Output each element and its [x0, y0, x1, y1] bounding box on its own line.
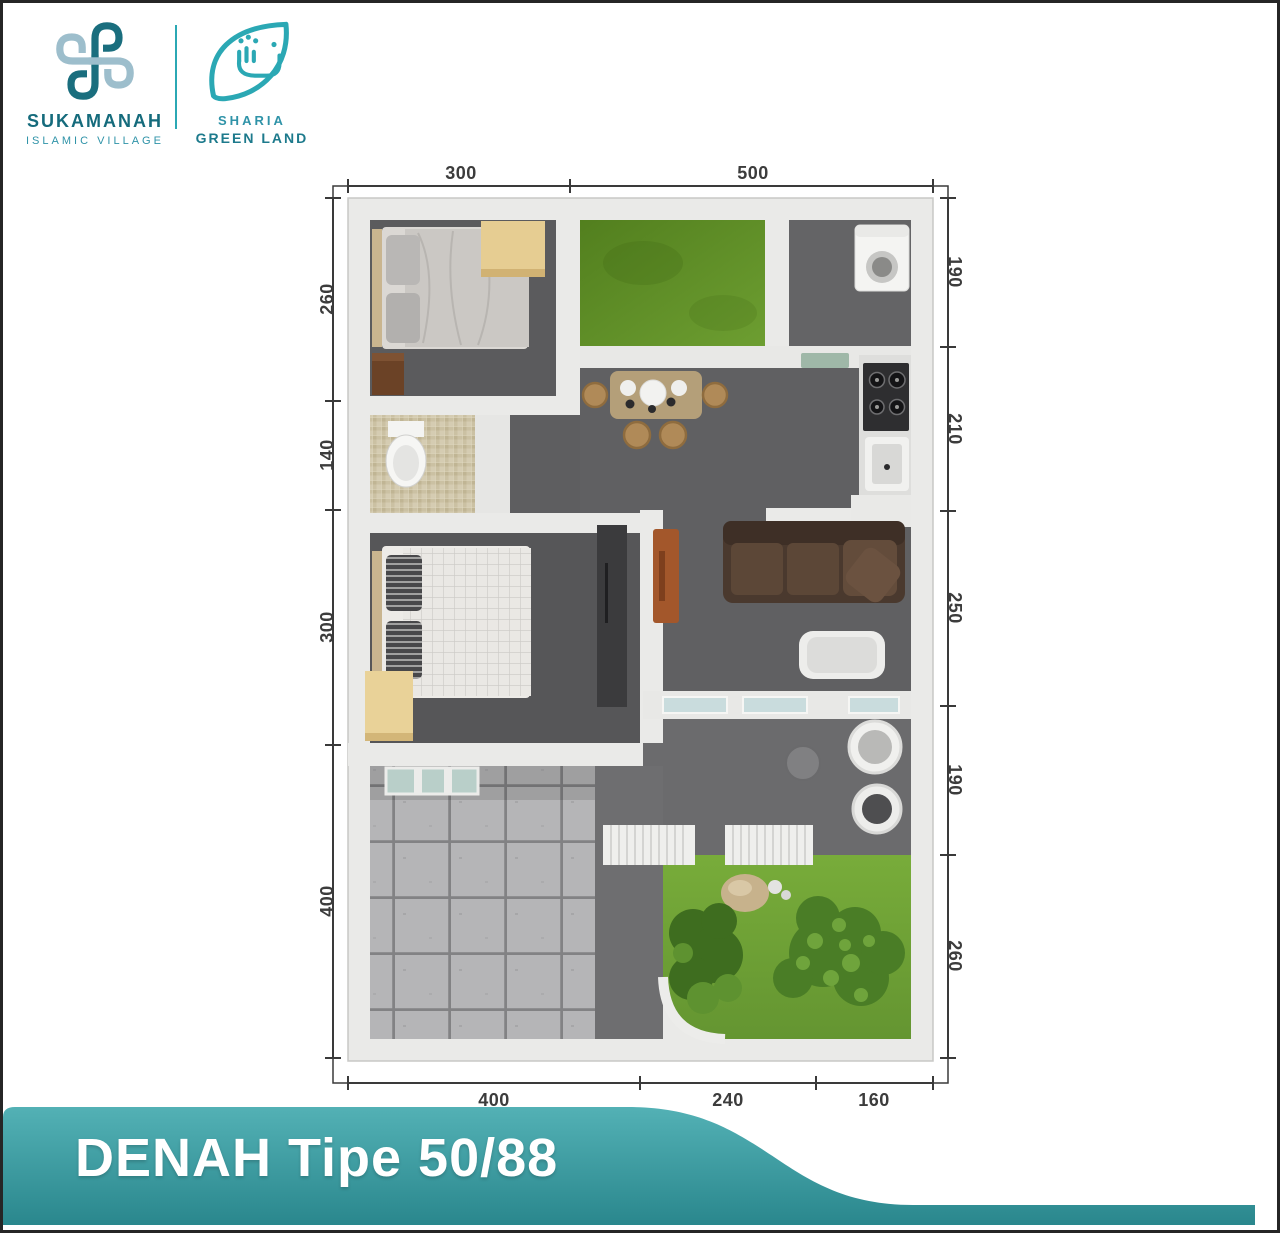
gray-pot — [786, 746, 820, 780]
service-area — [855, 225, 909, 291]
bed-2-pillow — [386, 555, 422, 611]
bed-1-pillow — [386, 293, 420, 343]
bed-2-pillow — [386, 621, 422, 679]
dim-left-1: 260 — [317, 283, 337, 315]
dim-right-5: 260 — [945, 940, 965, 972]
walkway-floor — [595, 766, 663, 1039]
hall-floor — [510, 415, 580, 513]
bed-2-headboard — [372, 551, 382, 691]
dark-wardrobe — [597, 525, 627, 707]
header-brands: SUKAMANAH ISLAMIC VILLAGE SHARIA GREEN L… — [21, 13, 321, 153]
bathroom — [386, 421, 426, 487]
sharia-brand: SHARIA GREEN LAND — [183, 13, 321, 146]
dim-right-2: 210 — [945, 413, 965, 445]
dim-right-3: 250 — [945, 592, 965, 624]
dim-top-2: 500 — [737, 163, 769, 183]
floor-plan: 300 500 260 140 300 400 190 210 250 190 … — [288, 153, 988, 1118]
dim-left-2: 140 — [317, 439, 337, 471]
tv-console — [653, 529, 679, 623]
sukamanah-name: SUKAMANAH — [21, 111, 169, 132]
dim-right-1: 190 — [945, 256, 965, 288]
bed-1-headboard — [372, 229, 382, 347]
bed-1-pillow — [386, 235, 420, 285]
sukamanah-brand: SUKAMANAH ISLAMIC VILLAGE — [21, 13, 169, 147]
bed-2-duvet — [403, 548, 531, 696]
wardrobe-1 — [481, 221, 545, 277]
sukamanah-knot-icon — [47, 13, 143, 109]
bedroom-2-window — [386, 768, 478, 794]
dim-left-4: 400 — [317, 885, 337, 917]
dim-right-4: 190 — [945, 764, 965, 796]
carport-tiles — [370, 766, 595, 1039]
sukamanah-tagline: ISLAMIC VILLAGE — [21, 135, 169, 147]
dim-top-1: 300 — [445, 163, 477, 183]
bathroom-partition — [475, 415, 510, 513]
flyer-page: SUKAMANAH ISLAMIC VILLAGE SHARIA GREEN L… — [0, 0, 1280, 1233]
sharia-leaf-icon — [197, 13, 307, 109]
wardrobe-2 — [365, 671, 413, 741]
sharia-line1: SHARIA — [183, 113, 321, 128]
sharia-line2: GREEN LAND — [183, 130, 321, 146]
sliding-glass-doors — [663, 697, 899, 713]
dim-left-3: 300 — [317, 611, 337, 643]
cutting-board — [801, 353, 849, 368]
banner-title: DENAH Tipe 50/88 — [75, 1127, 558, 1189]
brand-divider — [175, 25, 177, 129]
